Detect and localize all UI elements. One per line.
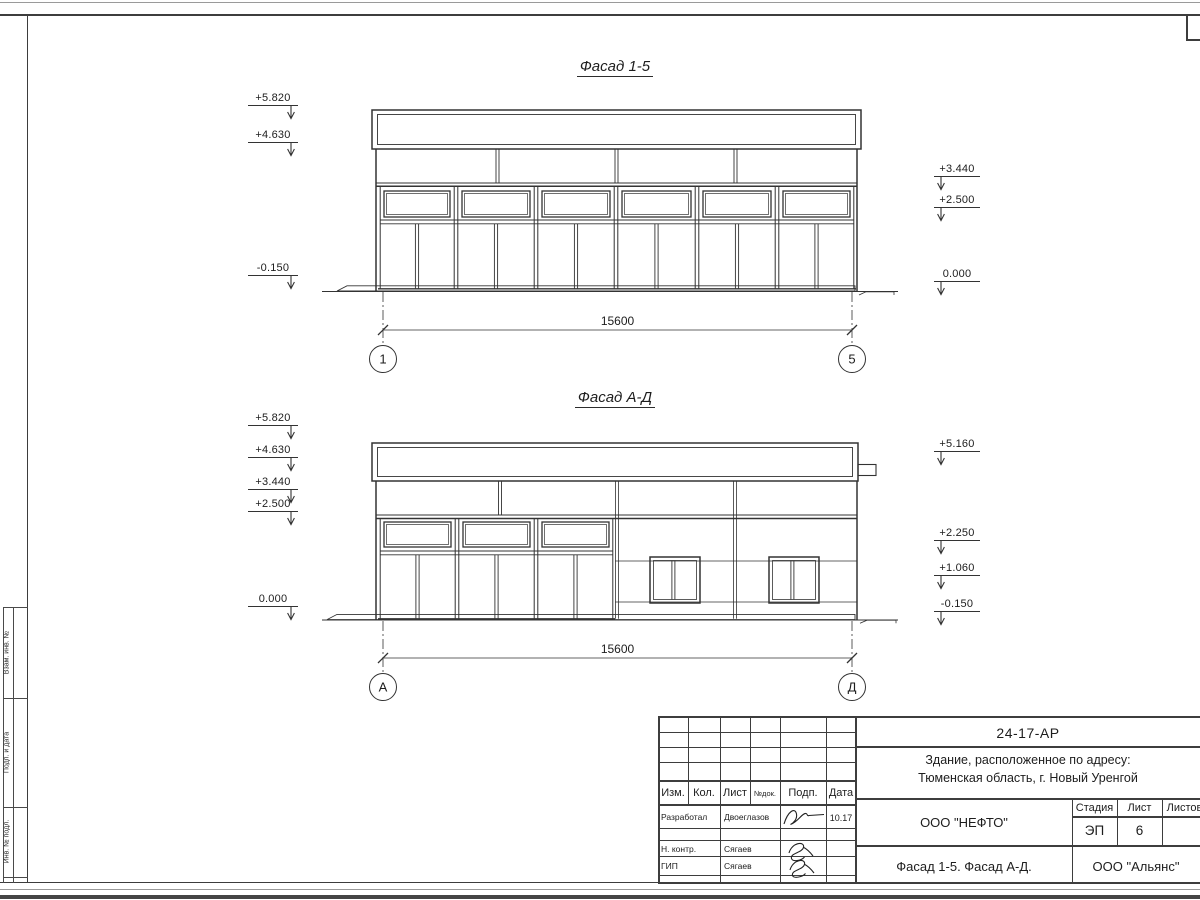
titleblock-line — [658, 804, 856, 806]
elevation-value: 0.000 — [943, 268, 972, 280]
frame-top-line — [0, 14, 1200, 16]
elevation-mark: 0.000 — [248, 593, 298, 607]
header-ndok: №док. — [750, 789, 780, 798]
elevation-value: +5.820 — [255, 412, 290, 424]
titleblock-line — [658, 882, 1200, 884]
down-arrow-icon — [285, 511, 297, 527]
address-line2: Тюменская область, г. Новый Уренгой — [856, 771, 1200, 785]
signature — [780, 840, 826, 878]
elevation-value: +2.500 — [255, 498, 290, 510]
titleblock-line — [658, 716, 1200, 718]
down-arrow-icon — [285, 142, 297, 158]
down-arrow-icon — [285, 275, 297, 291]
sheet-edge-line — [0, 2, 1200, 3]
elevation-value: +1.060 — [939, 562, 974, 574]
header-izm: Изм. — [658, 787, 688, 799]
drawing-sheet: Взам. инв. № Подп. и дата Инв. № подл. Ф… — [0, 0, 1200, 900]
facade1-geometry — [322, 110, 898, 373]
facade2-geometry — [322, 443, 898, 701]
header-podp: Подп. — [780, 787, 826, 799]
header-kol: Кол. — [688, 787, 720, 799]
row-role: Н. контр. — [661, 844, 720, 854]
strip-line — [3, 877, 28, 878]
scan-bottom-bar — [0, 895, 1200, 899]
elevation-mark: +5.820 — [248, 92, 298, 106]
frame-notch-horizontal — [1186, 39, 1200, 41]
elevation-value: +4.630 — [255, 129, 290, 141]
strip-label-podp: Подп. и дата — [3, 718, 12, 788]
facade1-dimension: 15600 — [601, 314, 635, 328]
doc-number: 24-17-АР — [856, 725, 1200, 741]
elevation-value: 0.000 — [259, 593, 288, 605]
header-data: Дата — [826, 787, 856, 799]
header-list: Лист — [720, 787, 750, 799]
facade2-axis-right: Д — [848, 680, 857, 695]
org-right: ООО "Альянс" — [1072, 859, 1200, 874]
titleblock-line — [1072, 816, 1200, 818]
elevation-value: +2.250 — [939, 527, 974, 539]
elevation-mark: +2.500 — [934, 194, 980, 208]
down-arrow-icon — [935, 451, 947, 467]
elevation-mark: +1.060 — [934, 562, 980, 576]
stage-value: ЭП — [1072, 823, 1117, 838]
sheet-title: Фасад 1-5. Фасад А-Д. — [856, 859, 1072, 874]
elevation-mark: 0.000 — [934, 268, 980, 282]
titleblock-line — [720, 716, 721, 884]
signature — [780, 805, 826, 828]
strip-label-inv: Инв. № подл. — [3, 807, 12, 877]
titleblock-line — [658, 840, 856, 841]
down-arrow-icon — [935, 575, 947, 591]
titleblock-line — [826, 716, 827, 884]
facade1-title-text: Фасад 1-5 — [577, 58, 653, 77]
elevation-value: +5.160 — [939, 438, 974, 450]
elevation-mark: -0.150 — [248, 262, 298, 276]
down-arrow-icon — [285, 105, 297, 121]
row-name: Сягаев — [724, 861, 780, 871]
titleblock-line — [658, 875, 856, 876]
elevation-value: +4.630 — [255, 444, 290, 456]
row-date: 10.17 — [826, 813, 856, 823]
elevation-value: -0.150 — [941, 598, 973, 610]
titleblock-line — [658, 732, 856, 733]
elevation-value: +3.440 — [255, 476, 290, 488]
down-arrow-icon — [285, 425, 297, 441]
titleblock-line — [658, 747, 856, 748]
down-arrow-icon — [935, 281, 947, 297]
title-block: Изм. Кол. Лист №док. Подп. Дата Разработ… — [658, 716, 1200, 884]
elevation-mark: +5.160 — [934, 438, 980, 452]
facade2-drawing: 15600 А Д — [320, 435, 900, 705]
sheet-label: Лист — [1117, 802, 1162, 814]
elevation-mark: +3.440 — [934, 163, 980, 177]
strip-line — [3, 607, 28, 608]
titleblock-line — [658, 856, 856, 857]
facade2-title: Фасад А-Д — [465, 389, 765, 406]
address-line1: Здание, расположенное по адресу: — [856, 753, 1200, 767]
facade2-dimension: 15600 — [601, 642, 635, 656]
elevation-value: -0.150 — [257, 262, 289, 274]
down-arrow-icon — [285, 606, 297, 622]
facade1-drawing: 15600 1 5 — [320, 105, 900, 375]
elevation-mark: +4.630 — [248, 444, 298, 458]
frame-notch-vertical — [1186, 14, 1188, 40]
elevation-value: +5.820 — [255, 92, 290, 104]
sheet-number: 6 — [1117, 823, 1162, 838]
down-arrow-icon — [935, 207, 947, 223]
titleblock-line — [658, 716, 660, 884]
elevation-value: +2.500 — [939, 194, 974, 206]
titleblock-line — [856, 746, 1200, 748]
stage-label: Стадия — [1072, 802, 1117, 814]
sheets-label: Листов — [1162, 802, 1200, 814]
facade1-title: Фасад 1-5 — [465, 58, 765, 75]
elevation-value: +3.440 — [939, 163, 974, 175]
facade2-title-text: Фасад А-Д — [575, 389, 655, 408]
strip-line — [3, 698, 28, 699]
elevation-mark: -0.150 — [934, 598, 980, 612]
row-name: Двоеглазов — [724, 812, 780, 822]
strip-line — [13, 607, 14, 883]
strip-label-vzam: Взам. инв. № — [3, 618, 12, 688]
titleblock-line — [658, 780, 856, 782]
facade1-axis-left: 1 — [379, 352, 386, 367]
org-center: ООО "НЕФТО" — [856, 815, 1072, 830]
elevation-mark: +2.500 — [248, 498, 298, 512]
titleblock-line — [658, 762, 856, 763]
facade2-axis-left: А — [379, 680, 388, 695]
elevation-mark: +5.820 — [248, 412, 298, 426]
elevation-mark: +2.250 — [934, 527, 980, 541]
elevation-mark: +4.630 — [248, 129, 298, 143]
elevation-mark: +3.440 — [248, 476, 298, 490]
titleblock-line — [658, 828, 856, 829]
down-arrow-icon — [935, 540, 947, 556]
facade1-axis-right: 5 — [848, 352, 855, 367]
row-role: Разработал — [661, 812, 720, 822]
down-arrow-icon — [285, 457, 297, 473]
row-role: ГИП — [661, 861, 720, 871]
titleblock-line — [856, 798, 1200, 800]
sheet-bottom-edge — [0, 889, 1200, 890]
titleblock-line — [856, 845, 1200, 847]
down-arrow-icon — [935, 611, 947, 627]
frame-left-line — [27, 14, 29, 883]
row-name: Сягаев — [724, 844, 780, 854]
down-arrow-icon — [935, 176, 947, 192]
